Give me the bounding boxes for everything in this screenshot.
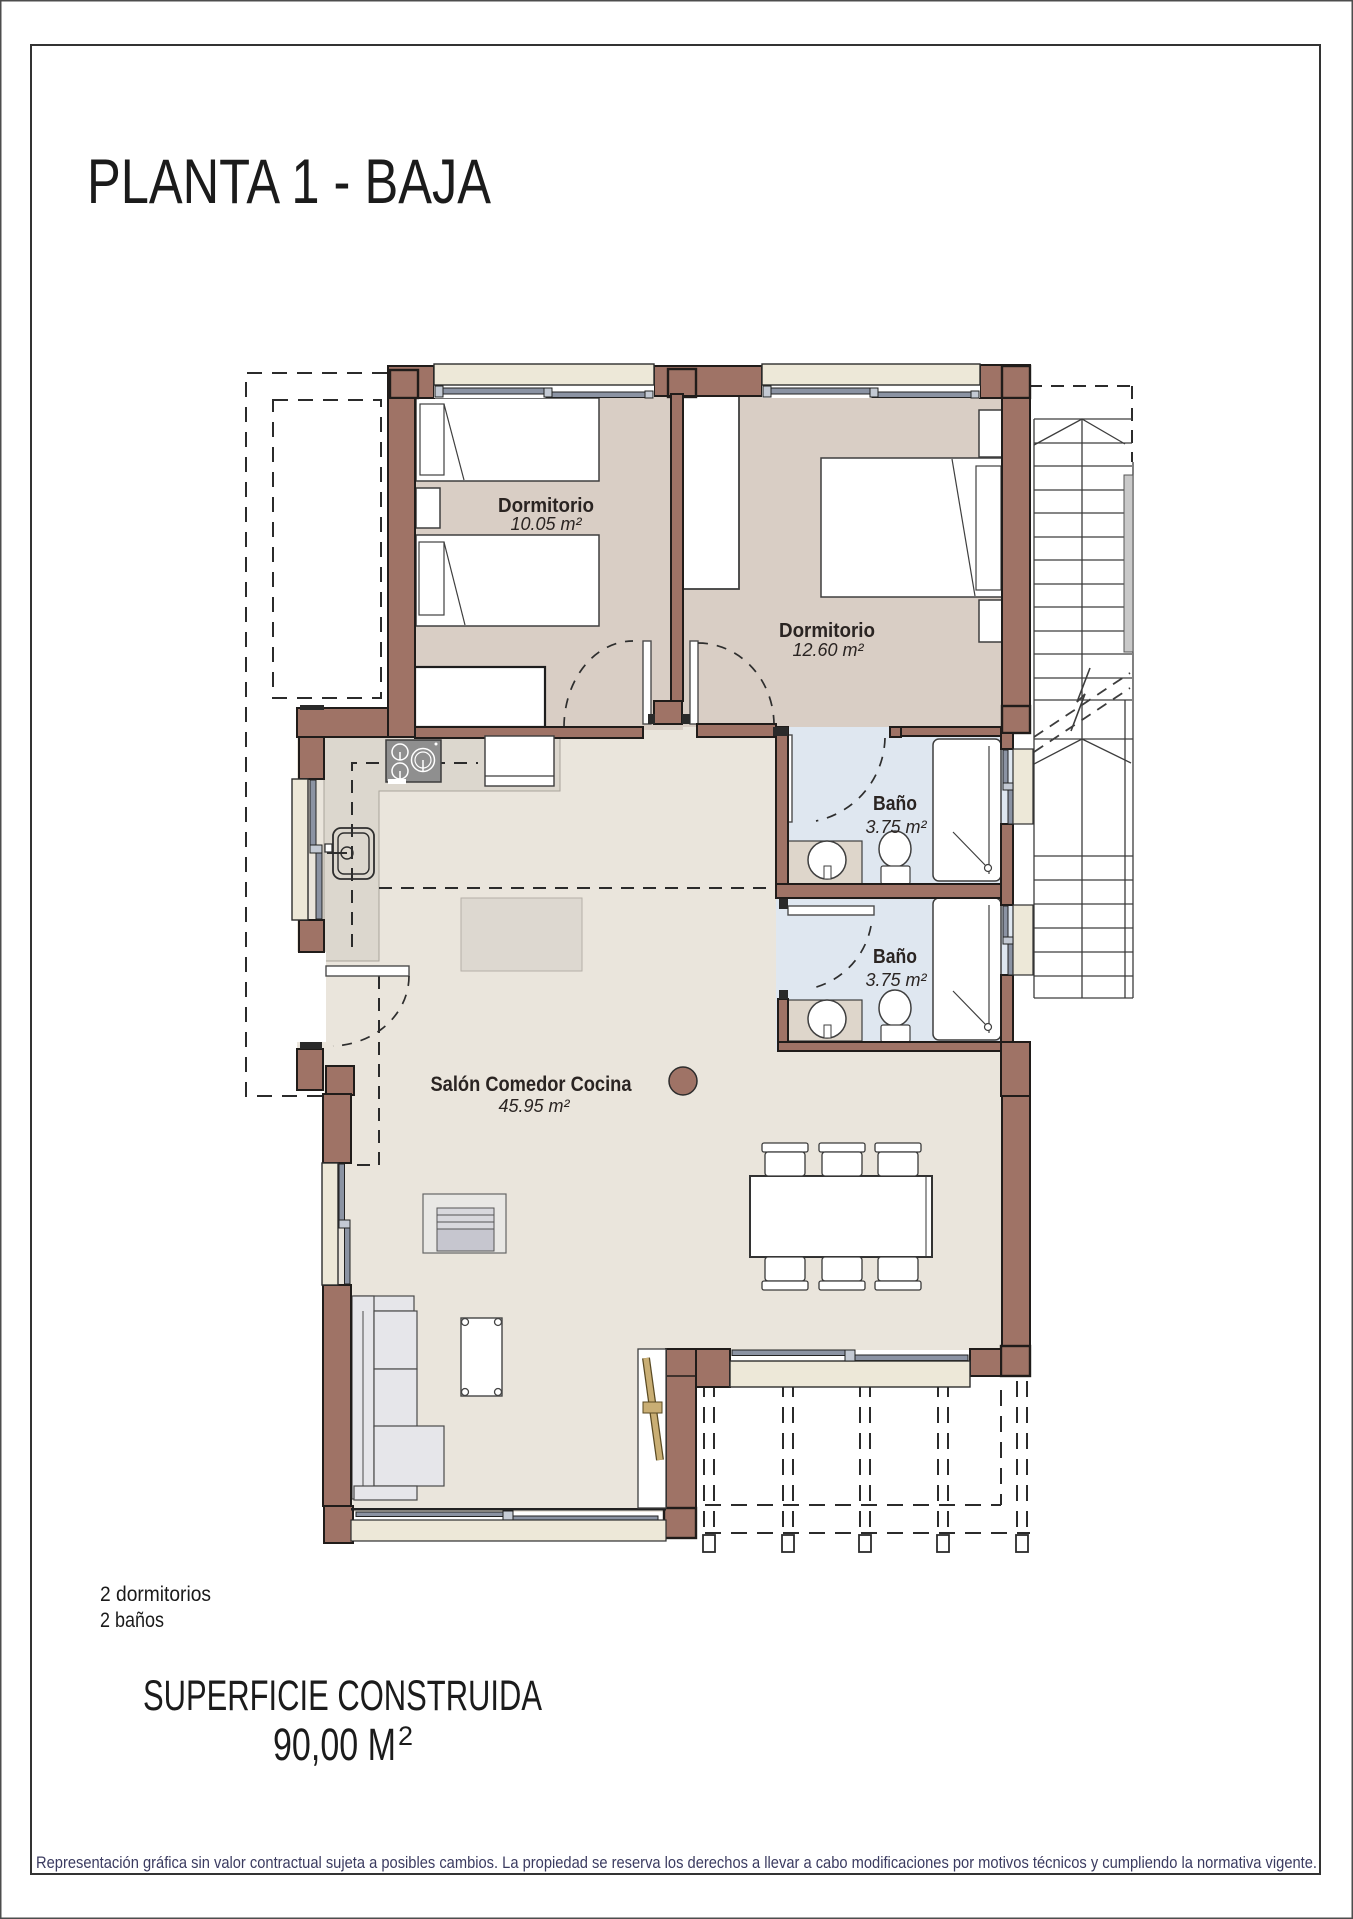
svg-text:2 dormitorios: 2 dormitorios bbox=[100, 1583, 211, 1606]
svg-text:2: 2 bbox=[398, 1721, 413, 1751]
svg-text:12.60 m²: 12.60 m² bbox=[792, 640, 864, 660]
svg-text:2 baños: 2 baños bbox=[100, 1609, 164, 1632]
svg-text:10.05 m²: 10.05 m² bbox=[510, 514, 582, 534]
svg-text:3.75 m²: 3.75 m² bbox=[865, 817, 927, 837]
svg-text:3.75 m²: 3.75 m² bbox=[865, 970, 927, 990]
svg-text:Representación gráfica sin val: Representación gráfica sin valor contrac… bbox=[36, 1853, 1317, 1872]
svg-text:Salón Comedor Cocina: Salón Comedor Cocina bbox=[431, 1072, 633, 1096]
svg-text:45.95 m²: 45.95 m² bbox=[498, 1096, 570, 1116]
svg-text:Dormitorio: Dormitorio bbox=[779, 619, 875, 642]
svg-text:Baño: Baño bbox=[873, 945, 917, 968]
svg-text:SUPERFICIE CONSTRUIDA: SUPERFICIE CONSTRUIDA bbox=[143, 1672, 542, 1720]
svg-text:PLANTA 1 - BAJA: PLANTA 1 - BAJA bbox=[87, 147, 492, 217]
svg-text:Baño: Baño bbox=[873, 792, 917, 815]
svg-text:90,00 M: 90,00 M bbox=[273, 1719, 396, 1770]
